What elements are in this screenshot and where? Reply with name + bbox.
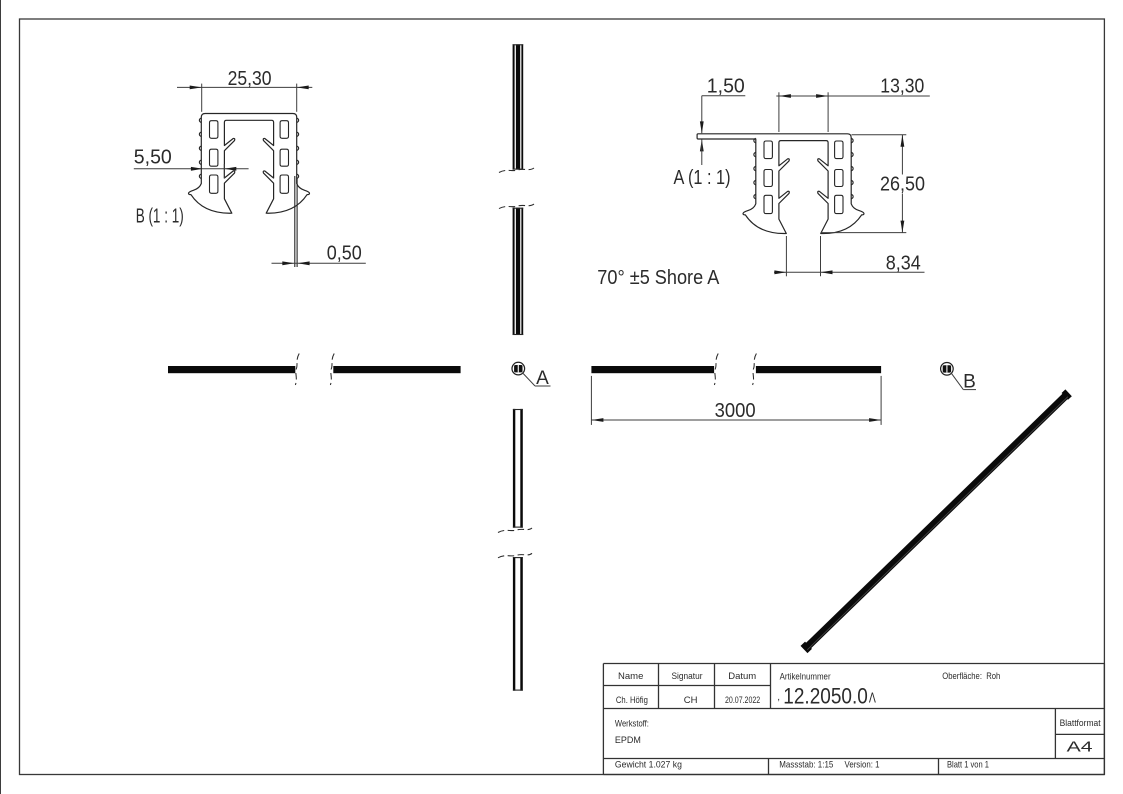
svg-text:A: A [536,368,549,389]
svg-text:Werkstoff:: Werkstoff: [615,719,649,730]
svg-text:26,50: 26,50 [880,174,925,196]
svg-text:5,50: 5,50 [134,146,172,168]
svg-text:Blatt 1 von 1: Blatt 1 von 1 [947,760,989,771]
svg-text:12.2050.0: 12.2050.0 [783,684,868,709]
svg-text:Gewicht 1.027 kg: Gewicht 1.027 kg [615,760,682,771]
svg-text:CH: CH [684,695,698,706]
svg-text:Λ: Λ [869,689,876,706]
svg-text:B (1 : 1): B (1 : 1) [136,205,184,227]
svg-text:EPDM: EPDM [615,735,641,746]
svg-text:Oberfläche: Roh: Oberfläche: Roh [942,671,1000,682]
svg-text:Artikelnummer: Artikelnummer [780,672,831,683]
svg-text:Name: Name [618,671,643,682]
svg-text:Datum: Datum [728,671,756,682]
svg-text:8,34: 8,34 [886,252,921,274]
svg-text:13,30: 13,30 [880,76,924,98]
svg-text:1,50: 1,50 [707,76,745,98]
svg-text:B: B [963,371,976,392]
svg-text:,: , [777,692,780,703]
svg-text:Ch. Höfig: Ch. Höfig [616,695,648,706]
svg-text:20.07.2022: 20.07.2022 [725,695,760,706]
svg-text:Massstab: 1:15: Massstab: 1:15 [779,760,833,771]
svg-text:Blattformat: Blattformat [1060,718,1101,729]
svg-text:Version: 1: Version: 1 [845,760,880,771]
svg-text:25,30: 25,30 [228,68,272,90]
svg-text:0,50: 0,50 [327,243,362,265]
svg-text:A4: A4 [1067,738,1093,755]
svg-text:Signatur: Signatur [672,671,703,682]
svg-text:3000: 3000 [715,400,756,422]
svg-text:A (1 : 1): A (1 : 1) [674,167,731,189]
svg-text:70° ±5 Shore A: 70° ±5 Shore A [597,267,720,289]
